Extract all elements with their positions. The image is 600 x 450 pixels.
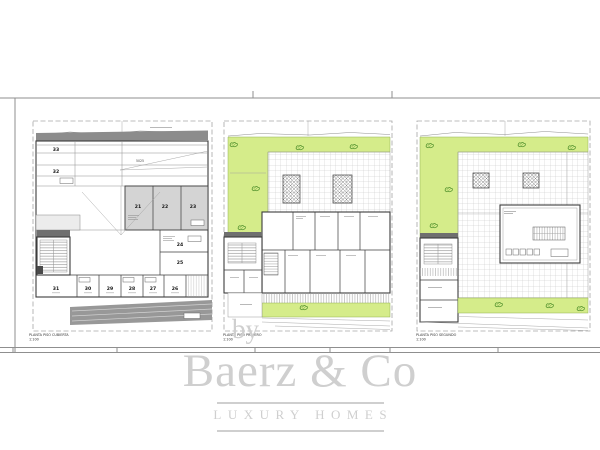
watermark-tagline: LUXURY HOMES	[140, 407, 460, 423]
watermark-by: by	[232, 314, 259, 345]
note-badge	[191, 220, 204, 226]
watermark-divider	[217, 402, 384, 404]
stair-core-hatched	[333, 175, 352, 203]
room-label: 32	[53, 169, 59, 175]
plan2-lawn-strip	[262, 303, 390, 317]
note-badge	[60, 178, 73, 184]
dimension-label: 5025	[136, 159, 144, 163]
tiny-text-smudge	[150, 127, 172, 128]
floor-plan-1: 33 32 5025 21 22 23 24 25	[29, 121, 212, 342]
note-badge	[79, 278, 90, 283]
room-label: 21	[135, 204, 141, 210]
room-label: 22	[162, 204, 168, 210]
hatched-strip	[186, 275, 208, 297]
stair-core-wall	[420, 233, 458, 238]
watermark-brand: Baerz & Co	[140, 344, 460, 398]
plan3-ground-profile	[420, 132, 588, 137]
note-badge	[184, 313, 200, 319]
skylight-hatched	[523, 173, 539, 188]
plan-caption-scale: 1:100	[416, 338, 426, 342]
room-label: 30	[85, 286, 91, 292]
stair-core-wall	[37, 230, 70, 237]
plan3-lawn-strip	[458, 298, 588, 313]
plan1-service-room	[36, 215, 80, 230]
room-label: 31	[53, 286, 59, 292]
plan-caption: PLANTA PISO CUBIERTA	[29, 333, 69, 337]
floor-plan-3: PLANTA PISO SEGUNDO 1:100	[416, 121, 590, 342]
stair-core-hatched	[283, 175, 300, 203]
room-label: 28	[129, 286, 135, 292]
plan-caption-scale: 1:100	[29, 338, 39, 342]
room-label: 29	[107, 286, 113, 292]
note-badge	[123, 278, 134, 283]
note-badge	[145, 278, 156, 283]
plan2-building-outline	[262, 212, 390, 293]
inner-stair	[264, 253, 278, 275]
floor-plan-2: PLANTA PISO PRIMERO 1:100	[223, 121, 392, 342]
balustrade-hatch	[420, 268, 458, 276]
plan1-roof-band	[36, 131, 208, 142]
balustrade-hatch	[262, 293, 390, 303]
room-label: 25	[177, 260, 183, 266]
plan-caption: PLANTA PISO SEGUNDO	[416, 333, 457, 337]
plan2-ground-profile	[228, 133, 390, 137]
stair-core-wall	[224, 232, 262, 237]
watermark-divider	[217, 430, 384, 432]
tiny-text-smudge	[240, 304, 252, 305]
room-label: 24	[177, 242, 183, 248]
room-label: 23	[190, 204, 196, 210]
plan2-slope-lines	[262, 318, 390, 330]
room-label: 26	[172, 286, 178, 292]
note-badge	[188, 236, 201, 242]
shaft	[37, 266, 43, 274]
skylight-hatched	[473, 173, 489, 188]
room-label: 27	[150, 286, 156, 292]
room-label: 33	[53, 147, 59, 153]
